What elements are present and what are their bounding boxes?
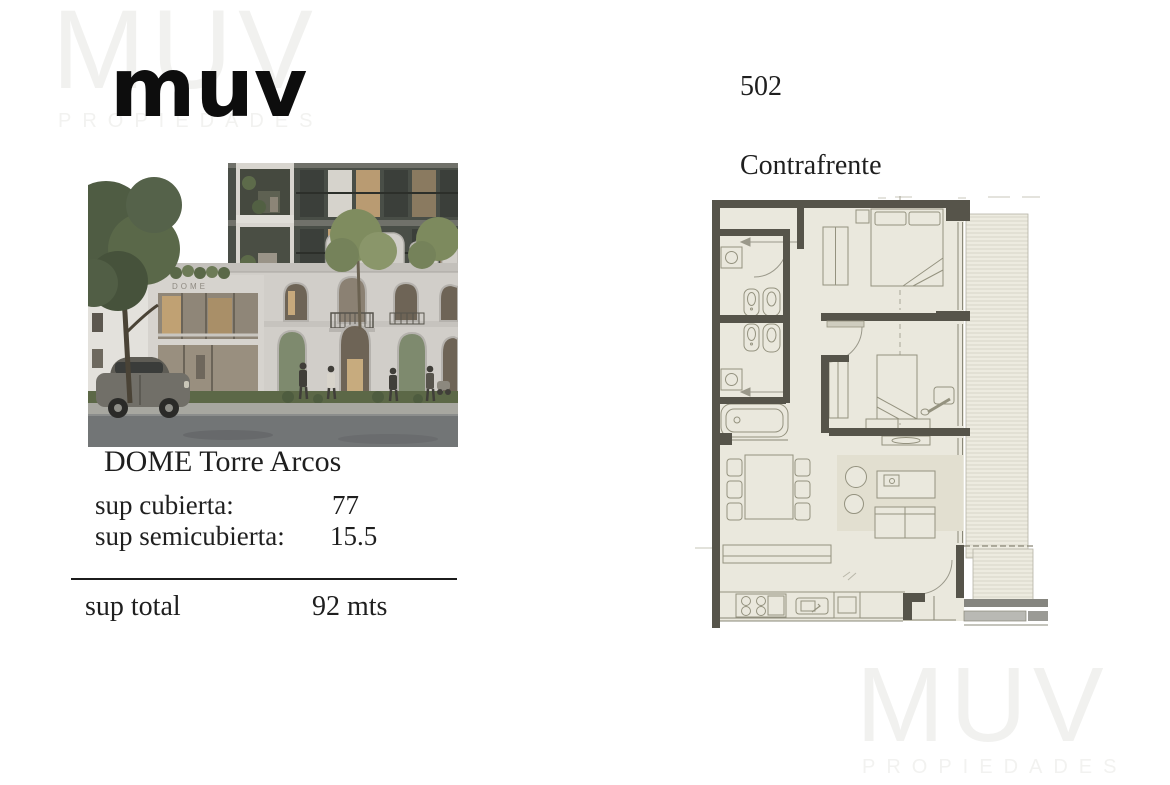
unit-floorplan-image: [695, 195, 1055, 645]
specs-divider-line: [71, 578, 457, 580]
watermark-propiedades-bottom: PROPIEDADES: [862, 756, 1127, 779]
unit-orientation: Contrafrente: [740, 150, 882, 182]
building-render-svg: DOME: [88, 163, 458, 447]
spec-label-cubierta: sup cubierta:: [95, 490, 234, 521]
project-title: DOME Torre Arcos: [104, 445, 341, 479]
balcony: [964, 214, 1035, 605]
bed-1: [871, 209, 943, 286]
brand-logo: muv: [110, 48, 307, 130]
facade-sign: DOME: [172, 282, 208, 291]
building-render-image: DOME: [88, 163, 458, 447]
stool-1: [846, 467, 867, 488]
total-value: 92 mts: [312, 591, 387, 623]
corridor-stairs: [964, 599, 1048, 625]
sliding-door-panel: [827, 321, 864, 327]
spec-value-cubierta: 77: [332, 490, 359, 521]
unit-number: 502: [740, 71, 782, 103]
floorplan-svg: [695, 195, 1055, 645]
stool-2: [845, 495, 864, 514]
spec-value-semicubierta: 15.5: [330, 521, 377, 552]
dining-table: [745, 455, 793, 519]
watermark-muv-bottom: MUV: [856, 652, 1110, 758]
bed-2: [877, 355, 917, 419]
spec-label-semicubierta: sup semicubierta:: [95, 521, 285, 552]
total-label: sup total: [85, 591, 181, 623]
listing-sheet: MUV PROPIEDADES MUV PROPIEDADES muv: [0, 0, 1170, 785]
dimension-ticks: [878, 197, 1040, 198]
